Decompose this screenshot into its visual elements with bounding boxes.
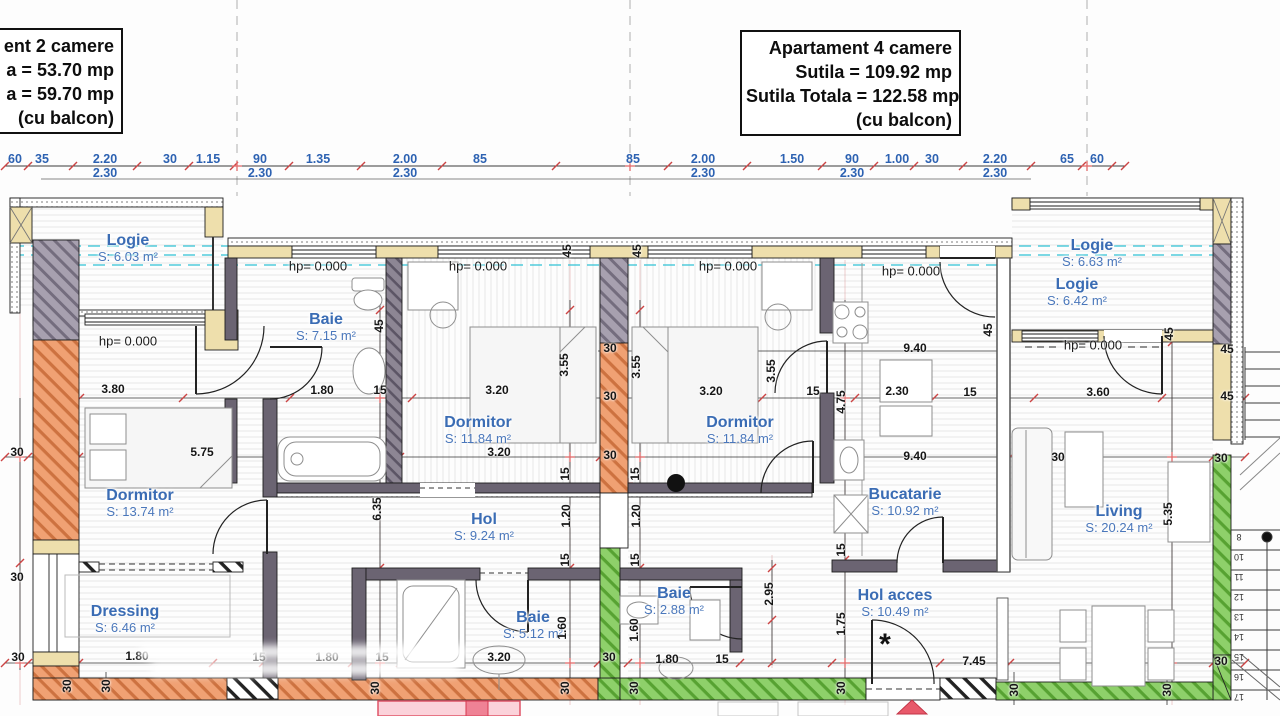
title-line: a = 59.70 mp <box>0 82 114 106</box>
dimension-label: 30 <box>834 681 848 694</box>
dimension-label: 1.75 <box>834 612 848 635</box>
room-name: Dressing <box>91 603 159 620</box>
title-line: Sutila Totala = 122.58 mp <box>746 84 952 108</box>
room-name: Baie <box>644 585 704 602</box>
room-area: S: 9.24 m² <box>454 528 514 543</box>
room-label: DormitorS: 13.74 m² <box>106 487 174 519</box>
dimension-label: 2.00 <box>691 152 715 166</box>
dimension-label: 15 <box>628 553 642 566</box>
dimension-label: 1.60 <box>555 616 569 639</box>
dimension-label: 15 <box>558 467 572 480</box>
dimension-label: 30 <box>602 650 615 664</box>
dimension-label: 1.20 <box>559 504 573 527</box>
room-name: Dormitor <box>706 414 774 431</box>
dimension-label: 30 <box>60 679 74 692</box>
dimension-label: 15 <box>558 553 572 566</box>
room-name: Dormitor <box>444 414 512 431</box>
room-name: Living <box>1085 503 1152 520</box>
dimension-label: 3.55 <box>557 353 571 376</box>
stair-step-number: 17 <box>1234 692 1244 702</box>
dimension-label: 30 <box>558 681 572 694</box>
room-area: S: 13.74 m² <box>106 504 174 519</box>
dimension-label: 6.35 <box>370 497 384 520</box>
dimension-label: 7.45 <box>962 654 985 668</box>
room-label: Hol accesS: 10.49 m² <box>858 587 933 619</box>
dimension-label: 30 <box>10 570 23 584</box>
floor-level-label: hp= 0.000 <box>289 259 347 274</box>
dimension-label: 1.80 <box>310 383 333 397</box>
dimension-label: 3.20 <box>487 650 510 664</box>
dimension-label: 2.30 <box>691 166 715 180</box>
dimension-label: 1.00 <box>885 152 909 166</box>
floorplan-page: LogieS: 6.03 m²BaieS: 7.15 m²DormitorS: … <box>0 0 1280 716</box>
dimension-label: 2.30 <box>983 166 1007 180</box>
dimension-label: 30 <box>163 152 177 166</box>
dimension-label: 90 <box>253 152 267 166</box>
room-area: S: 10.92 m² <box>869 503 942 518</box>
room-name: Hol acces <box>858 587 933 604</box>
stair-step-number: 14 <box>1234 632 1244 642</box>
title-line: Sutila = 109.92 mp <box>746 60 952 84</box>
dimension-label: 15 <box>963 385 976 399</box>
room-name: Logie <box>1047 276 1107 293</box>
dimension-label: 2.20 <box>93 152 117 166</box>
dimension-label: 60 <box>1090 152 1104 166</box>
room-name: Dormitor <box>106 487 174 504</box>
dimension-label: 1.60 <box>627 618 641 641</box>
dimension-label: 30 <box>603 389 616 403</box>
dimension-label: 90 <box>845 152 859 166</box>
dimension-label: 2.30 <box>885 384 908 398</box>
room-area: S: 11.84 m² <box>444 431 512 446</box>
floor-level-label: hp= 0.000 <box>699 259 757 274</box>
dimension-label: 3.20 <box>487 445 510 459</box>
dimension-label: 15 <box>373 383 386 397</box>
room-label: LogieS: 6.03 m² <box>98 232 158 264</box>
dimension-label: 45 <box>1220 389 1233 403</box>
dimension-label: 5.75 <box>190 445 213 459</box>
dimension-label: 45 <box>1162 327 1176 340</box>
room-label: LogieS: 6.63 m² <box>1062 237 1122 269</box>
room-name: Bucatarie <box>869 486 942 503</box>
dimension-label: 15 <box>715 652 728 666</box>
dimension-label: 3.55 <box>629 355 643 378</box>
room-label: HolS: 9.24 m² <box>454 511 514 543</box>
dimension-label: 30 <box>1051 450 1064 464</box>
dimension-label: 45 <box>560 244 574 257</box>
dimension-label: 2.20 <box>983 152 1007 166</box>
dimension-label: 30 <box>99 679 113 692</box>
floor-level-label: hp= 0.000 <box>449 259 507 274</box>
room-label: DormitorS: 11.84 m² <box>444 414 512 446</box>
watermark <box>150 662 460 676</box>
room-area: S: 20.24 m² <box>1085 520 1152 535</box>
dimension-label: 85 <box>473 152 487 166</box>
stair-step-number: 10 <box>1234 552 1244 562</box>
room-area: S: 2.88 m² <box>644 602 704 617</box>
stair-step-number: 15 <box>1234 652 1244 662</box>
room-area: S: 6.03 m² <box>98 249 158 264</box>
dimension-label: 4.75 <box>834 390 848 413</box>
stair-step-number: 12 <box>1234 592 1244 602</box>
title-line: (cu balcon) <box>746 108 952 132</box>
room-name: Logie <box>98 232 158 249</box>
dimension-label: 2.30 <box>393 166 417 180</box>
room-area: S: 6.42 m² <box>1047 293 1107 308</box>
room-label: BucatarieS: 10.92 m² <box>869 486 942 518</box>
floor-level-label: hp= 0.000 <box>99 334 157 349</box>
room-name: Hol <box>454 511 514 528</box>
floor-level-label: hp= 0.000 <box>1064 338 1122 353</box>
dimension-label: 15 <box>806 384 819 398</box>
dimension-label: 30 <box>1214 654 1227 668</box>
dimension-label: 30 <box>1007 683 1021 696</box>
dimension-label: 1.15 <box>196 152 220 166</box>
plan-labels: LogieS: 6.03 m²BaieS: 7.15 m²DormitorS: … <box>0 0 1280 716</box>
stair-step-number: 13 <box>1234 612 1244 622</box>
dimension-label: 30 <box>11 650 24 664</box>
title-box-apartment2: ent 2 camere a = 53.70 mp a = 59.70 mp (… <box>0 28 123 134</box>
title-box-apartment4: Apartament 4 camere Sutila = 109.92 mp S… <box>740 30 961 136</box>
room-name: Logie <box>1062 237 1122 254</box>
dimension-label: 45 <box>630 244 644 257</box>
dimension-label: 30 <box>1214 451 1227 465</box>
title-line: (cu balcon) <box>0 106 114 130</box>
stair-step-number: 8 <box>1236 532 1241 542</box>
dimension-label: 2.30 <box>248 166 272 180</box>
room-area: S: 11.84 m² <box>706 431 774 446</box>
dimension-label: 1.80 <box>655 652 678 666</box>
dimension-label: 1.50 <box>780 152 804 166</box>
room-label: LivingS: 20.24 m² <box>1085 503 1152 535</box>
dimension-label: 30 <box>925 152 939 166</box>
dimension-label: 2.95 <box>762 582 776 605</box>
dimension-label: 2.30 <box>93 166 117 180</box>
room-label: DormitorS: 11.84 m² <box>706 414 774 446</box>
dimension-label: 65 <box>1060 152 1074 166</box>
room-name: Baie <box>503 609 563 626</box>
stair-step-number: 11 <box>1234 572 1243 582</box>
dimension-label: 30 <box>603 448 616 462</box>
dimension-label: 60 <box>8 152 22 166</box>
title-line: a = 53.70 mp <box>0 58 114 82</box>
dimension-label: 1.35 <box>306 152 330 166</box>
dimension-label: 45 <box>372 319 386 332</box>
dimension-label: 15 <box>628 467 642 480</box>
room-label: LogieS: 6.42 m² <box>1047 276 1107 308</box>
dimension-label: 30 <box>368 681 382 694</box>
entrance-asterisk: * <box>879 628 891 662</box>
room-area: S: 6.46 m² <box>91 620 159 635</box>
watermark <box>138 645 468 659</box>
room-label: BaieS: 5.12 m² <box>503 609 563 641</box>
stair-step-number: 16 <box>1234 672 1244 682</box>
dimension-label: 9.40 <box>903 341 926 355</box>
dimension-label: 35 <box>35 152 49 166</box>
dimension-label: 30 <box>1160 683 1174 696</box>
dimension-label: 45 <box>1220 342 1233 356</box>
dimension-label: 45 <box>981 323 995 336</box>
room-area: S: 6.63 m² <box>1062 254 1122 269</box>
title-line: ent 2 camere <box>0 34 114 58</box>
dimension-label: 2.30 <box>840 166 864 180</box>
room-area: S: 7.15 m² <box>296 328 356 343</box>
dimension-label: 30 <box>10 445 23 459</box>
room-label: BaieS: 7.15 m² <box>296 311 356 343</box>
dimension-label: 85 <box>626 152 640 166</box>
dimension-label: 1.20 <box>629 504 643 527</box>
dimension-label: 3.60 <box>1086 385 1109 399</box>
dimension-label: 5.35 <box>1161 502 1175 525</box>
dimension-label: 30 <box>627 681 641 694</box>
dimension-label: 15 <box>834 543 848 556</box>
dimension-label: 2.00 <box>393 152 417 166</box>
dimension-label: 3.20 <box>485 383 508 397</box>
room-label: DressingS: 6.46 m² <box>91 603 159 635</box>
dimension-label: 9.40 <box>903 449 926 463</box>
room-name: Baie <box>296 311 356 328</box>
title-line: Apartament 4 camere <box>746 36 952 60</box>
floor-level-label: hp= 0.000 <box>882 264 940 279</box>
room-area: S: 5.12 m² <box>503 626 563 641</box>
room-label: BaieS: 2.88 m² <box>644 585 704 617</box>
dimension-label: 3.55 <box>764 359 778 382</box>
room-area: S: 10.49 m² <box>858 604 933 619</box>
dimension-label: 3.80 <box>101 382 124 396</box>
dimension-label: 30 <box>603 341 616 355</box>
dimension-label: 3.20 <box>699 384 722 398</box>
